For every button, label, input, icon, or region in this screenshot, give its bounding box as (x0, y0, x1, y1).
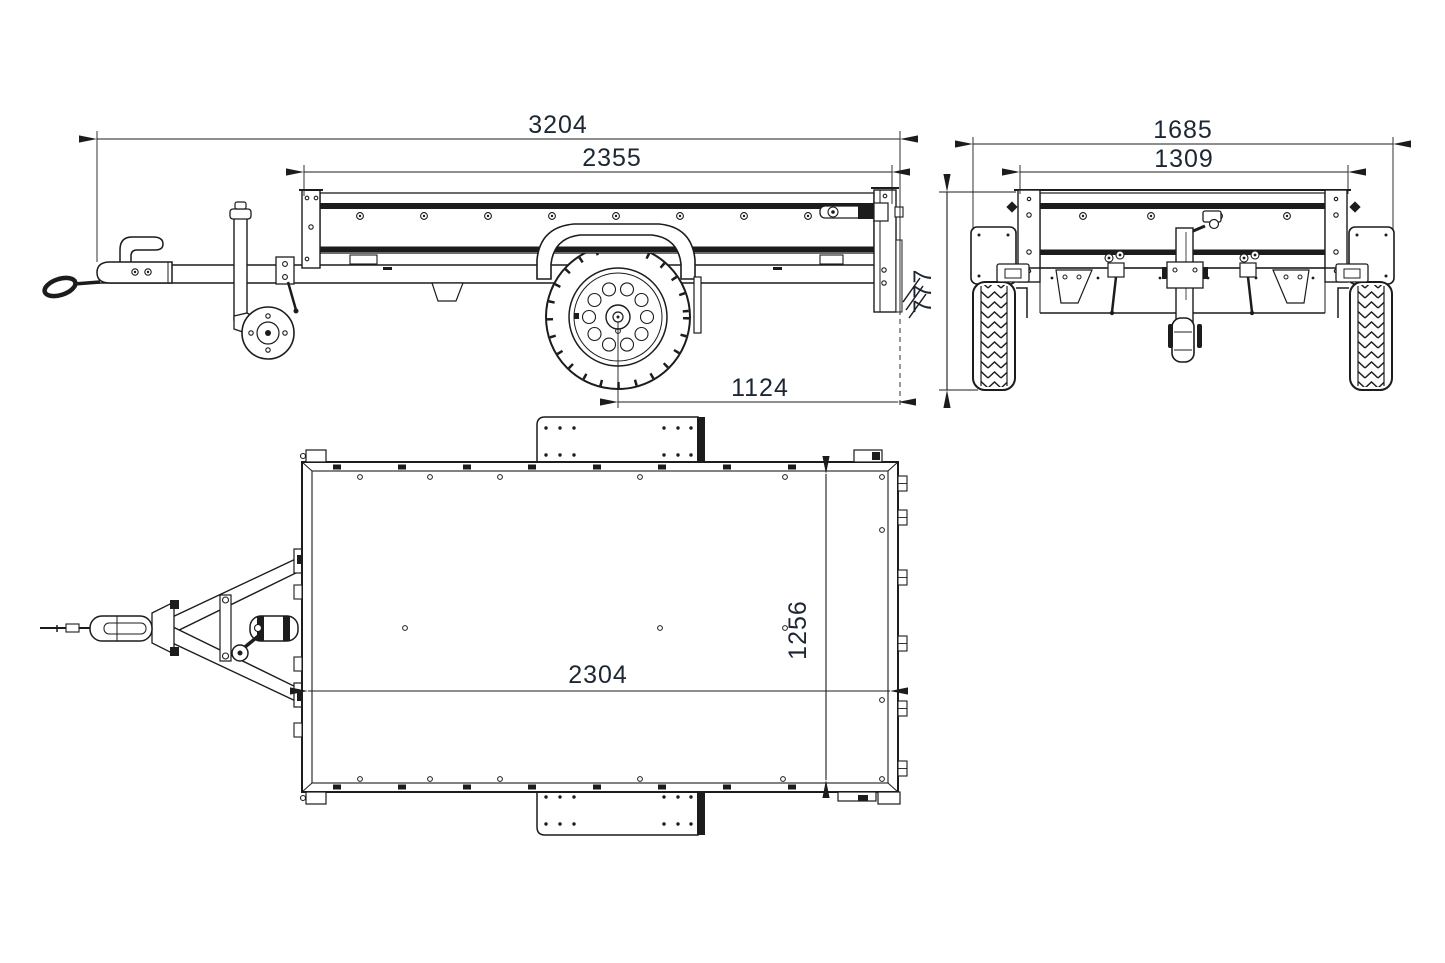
jockey-wheel-top (232, 616, 298, 661)
side-tabs-left (294, 585, 302, 737)
dimension-box-width: 1309 (1020, 145, 1348, 194)
rear-wheel-left (973, 282, 1027, 390)
safety-cable-top (40, 624, 90, 632)
jockey-wheel-side (230, 202, 299, 359)
drawing-canvas: 3204 2355 1124 (0, 0, 1445, 963)
tail-light-left (997, 264, 1029, 282)
road-wheel (546, 245, 690, 408)
dim-label-3204: 3204 (528, 111, 588, 139)
dim-label-2304: 2304 (568, 661, 628, 689)
tailgate-hinges (898, 476, 907, 776)
safety-cable (42, 274, 100, 299)
dim-label-777: 777 (909, 269, 937, 314)
trailer-technical-drawing: 3204 2355 1124 (0, 0, 1445, 963)
dimension-overall-length: 3204 (97, 111, 900, 408)
side-view: 3204 2355 1124 (42, 111, 903, 408)
top-fender-front (537, 417, 705, 463)
coupling-top (90, 600, 179, 656)
gusset-left (1056, 270, 1092, 303)
tail-light-right (1336, 264, 1368, 282)
dimension-axle-to-rear: 1124 (618, 374, 898, 402)
coupling (97, 237, 172, 283)
chassis-bracket (432, 283, 463, 301)
rear-view: 1685 1309 777 (903, 116, 1394, 390)
dim-label-1685: 1685 (1153, 116, 1213, 144)
top-fender-back (537, 789, 705, 835)
dim-label-1124: 1124 (731, 374, 789, 402)
dim-label-2355: 2355 (582, 144, 642, 172)
drawbar-top (40, 549, 308, 707)
bed-platform-top (294, 450, 907, 804)
dim-label-1256: 1256 (784, 600, 812, 660)
rear-wheel-right (1338, 282, 1392, 390)
top-view: 2304 1256 (40, 417, 907, 835)
dim-label-1309: 1309 (1154, 145, 1214, 173)
chassis-beam (97, 265, 897, 283)
mud-flap (694, 277, 701, 333)
gusset-right (1273, 270, 1309, 303)
front-post (299, 190, 323, 268)
